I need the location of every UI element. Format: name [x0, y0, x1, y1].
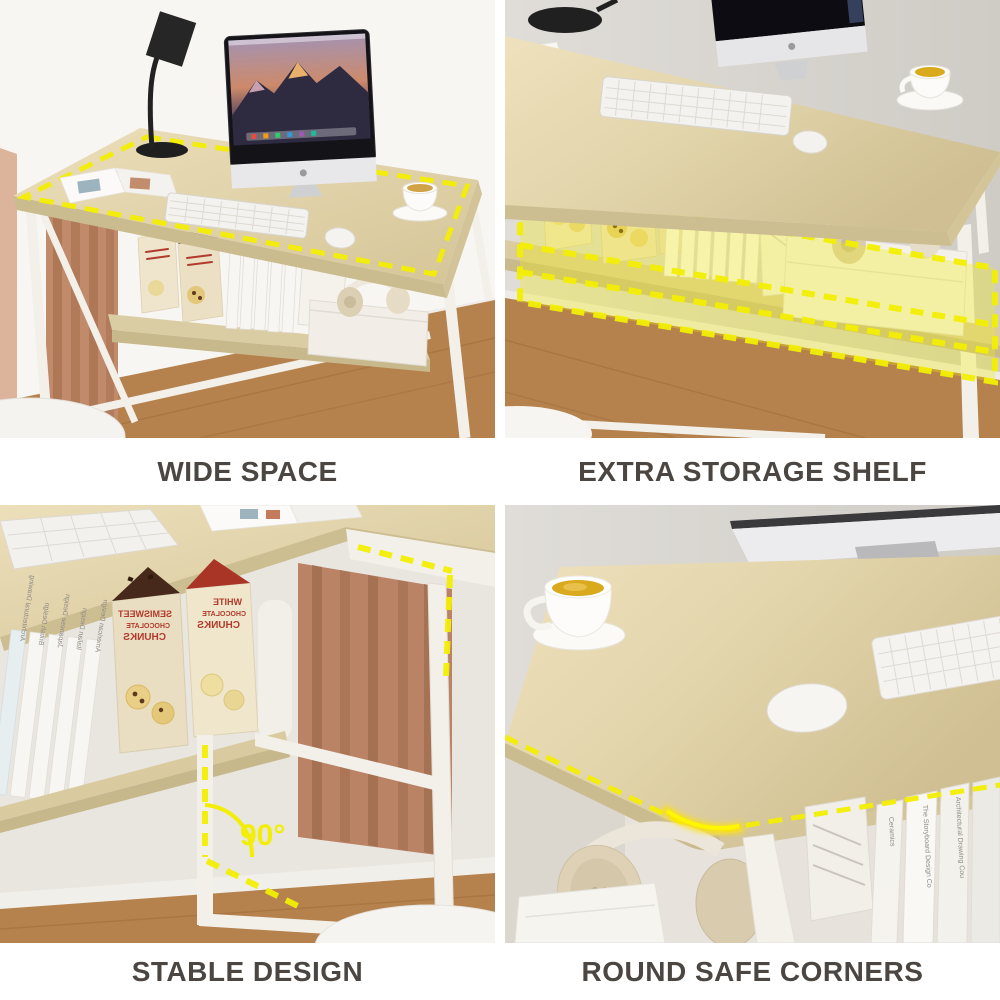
- imac: [224, 29, 377, 200]
- svg-text:CHOCOLATE: CHOCOLATE: [202, 611, 246, 618]
- angle-label: 90°: [240, 819, 285, 852]
- feature-photo-round-safe-corners: Ceramics The Storyboard Design Co Archit…: [505, 505, 1000, 943]
- svg-text:SEMISWEET: SEMISWEET: [117, 609, 172, 619]
- extra-storage-shelf-scene: WHITE CHOCOLATE CHUNKS SEMISWEET CHOCOLA…: [505, 0, 1000, 438]
- svg-text:CHUNKS: CHUNKS: [123, 632, 166, 643]
- feature-collage-grid: WHITE CHOCOLATE CHUNKS SEMISWEET CHOCOLA…: [0, 0, 1000, 1000]
- feature-photo-wide-space: [0, 0, 495, 438]
- chocolate-bag-white-mirrored: WHITE CHOCOLATE CHUNKS: [186, 559, 258, 737]
- caption-extra-storage-shelf: EXTRA STORAGE SHELF: [505, 438, 1000, 505]
- stable-design-scene: Architectural Drawing British Design Jap…: [0, 505, 495, 943]
- caption-stable-design: STABLE DESIGN: [0, 943, 495, 1000]
- svg-text:CHOCOLATE: CHOCOLATE: [126, 623, 170, 630]
- svg-text:CHUNKS: CHUNKS: [197, 620, 240, 631]
- feature-photo-stable-design: Architectural Drawing British Design Jap…: [0, 505, 495, 943]
- chocolate-bag-semisweet-mirrored: SEMISWEET CHOCOLATE CHUNKS: [112, 567, 188, 753]
- caption-round-safe-corners: ROUND SAFE CORNERS: [505, 943, 1000, 1000]
- feature-photo-extra-storage-shelf: WHITE CHOCOLATE CHUNKS SEMISWEET CHOCOLA…: [505, 0, 1000, 438]
- wide-space-scene: [0, 0, 495, 438]
- large-storage-box: [308, 300, 428, 366]
- round-safe-corners-scene: Ceramics The Storyboard Design Co Archit…: [505, 505, 1000, 943]
- caption-wide-space: WIDE SPACE: [0, 438, 495, 505]
- svg-text:WHITE: WHITE: [213, 597, 242, 607]
- rolled-paper: [258, 600, 292, 740]
